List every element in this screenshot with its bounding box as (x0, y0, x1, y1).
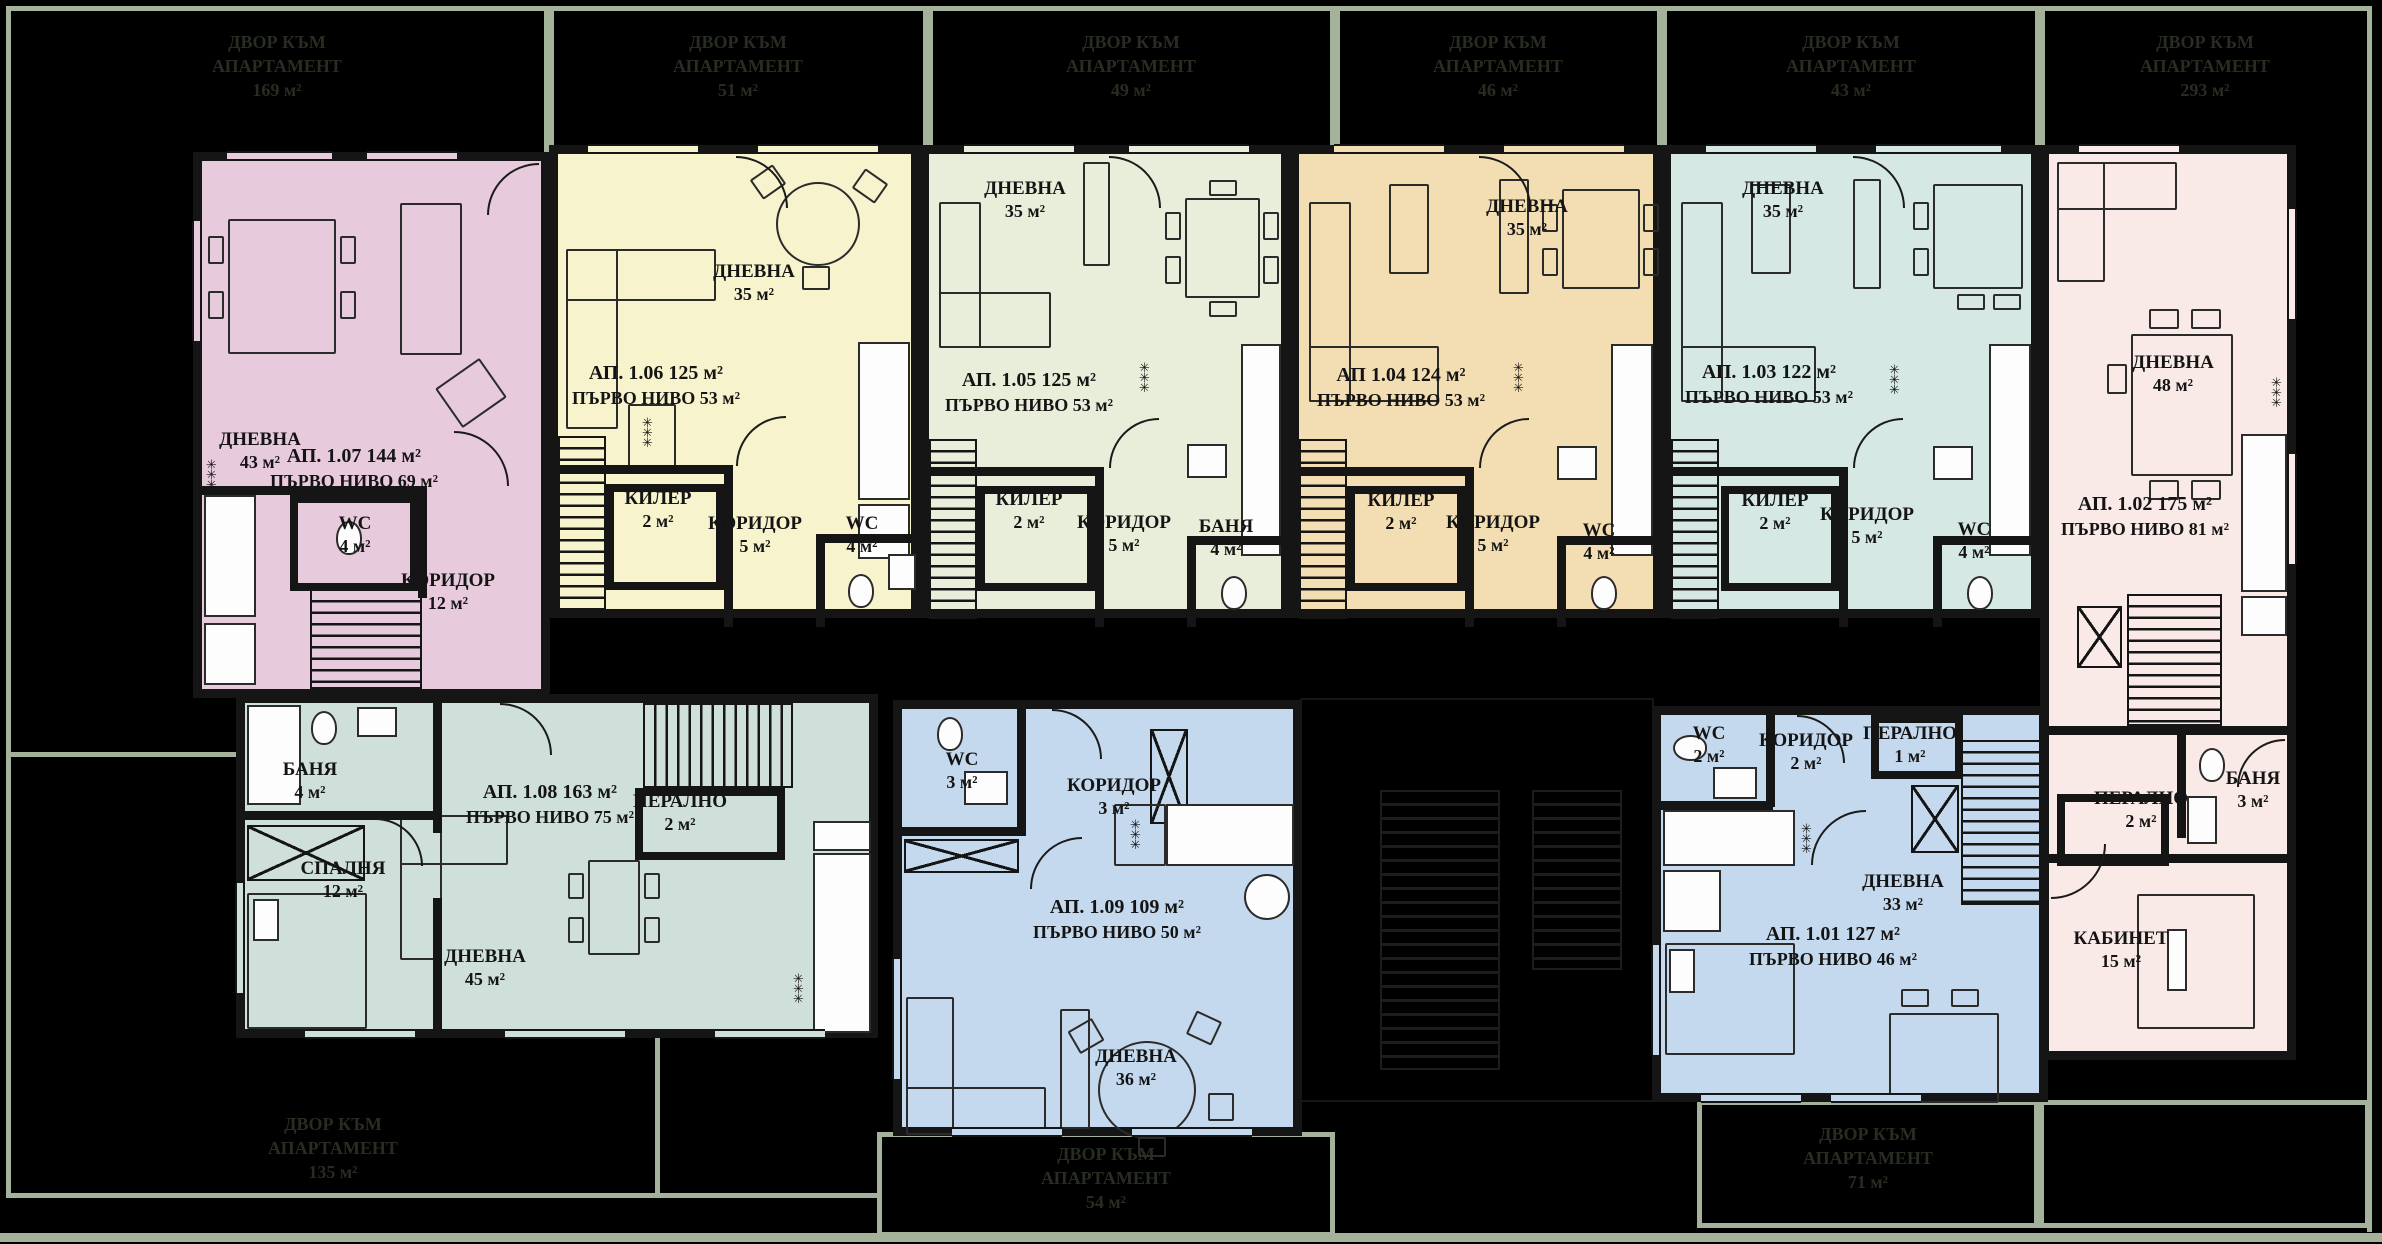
yard-label: ДВОР КЪМ АПАРТАМЕНТ 169 м² (212, 30, 342, 102)
room-name: КОРИДОР (1820, 504, 1914, 525)
chair (1542, 248, 1558, 276)
yard-label-line: ДВОР КЪМ (673, 30, 803, 54)
room-name: КИЛЕР (625, 488, 692, 509)
stairs (1532, 790, 1622, 970)
room-area: 5 м² (1446, 534, 1540, 556)
window (1651, 945, 1661, 1055)
room-label: WC 4 м² (339, 513, 372, 557)
radiator-symbol: ✳✳✳ (1139, 364, 1154, 394)
stairs (1671, 439, 1719, 619)
room-label: КОРИДОР 5 м² (708, 513, 802, 557)
kitchen-counter (1611, 344, 1653, 556)
room-label: ДНЕВНА 33 м² (1862, 871, 1944, 915)
yard-label-line: ДВОР КЪМ (2140, 30, 2270, 54)
window (758, 144, 878, 154)
room-name: ПЕРАЛНО (1863, 723, 1957, 744)
room-area: 4 м² (1958, 541, 1991, 563)
room-area: 4 м² (1199, 538, 1254, 560)
room-area: 2 м² (1693, 745, 1726, 767)
interior-wall (558, 465, 728, 474)
room-area: 5 м² (708, 535, 802, 557)
room-name: ДНЕВНА (984, 178, 1066, 199)
kitchen-counter (813, 853, 871, 1033)
yard-label-area: 71 м² (1803, 1170, 1933, 1194)
kitchen-counter (1166, 804, 1294, 866)
yard-label-line: ДВОР КЪМ (1803, 1122, 1933, 1146)
chair (1138, 1137, 1166, 1157)
sink (1933, 446, 1973, 480)
common-stairwell (1302, 700, 1652, 1100)
room-label: ДНЕВНА 35 м² (984, 178, 1066, 222)
room-label: WC 2 м² (1693, 723, 1726, 767)
chair (1165, 212, 1181, 240)
apartment-title: АП. 1.03 122 м² ПЪРВО НИВО 53 м² (1685, 360, 1853, 410)
window (952, 1127, 1062, 1137)
apartment-level: ПЪРВО НИВО 69 м² (270, 469, 438, 494)
room-label: ДНЕВНА 35 м² (713, 261, 795, 305)
window (1129, 144, 1249, 154)
plot-line (2367, 6, 2372, 1232)
chair (208, 236, 224, 264)
window (715, 1029, 825, 1039)
kitchen-counter (1989, 344, 2031, 556)
sink (204, 623, 256, 685)
closet-x (904, 839, 1019, 873)
apartment-title: АП. 1.01 127 м² ПЪРВО НИВО 46 м² (1749, 922, 1917, 972)
door-arc (1853, 156, 1905, 208)
door-arc (1853, 418, 1903, 468)
room-area: 33 м² (1862, 893, 1944, 915)
yard-label-area: 46 м² (1433, 78, 1563, 102)
room-area: 12 м² (401, 592, 495, 614)
pillow (1669, 949, 1695, 993)
apartment-number: АП. 1.01 127 м² (1766, 923, 1900, 945)
yard-label-line: ДВОР КЪМ (1786, 30, 1916, 54)
chair (1263, 256, 1279, 284)
chair (1186, 1010, 1222, 1045)
yard-label-line: АПАРТАМЕНТ (1786, 54, 1916, 78)
room-name: ДНЕВНА (444, 946, 526, 967)
yard-label-area: 43 м² (1786, 78, 1916, 102)
room-name: КОРИДОР (401, 570, 495, 591)
shelf (1083, 162, 1110, 266)
interior-wall (816, 534, 825, 627)
apartment-108[interactable]: ✳✳✳ БАНЯ 4 м² АП. 1.08 163 м² ПЪРВО НИВО… (236, 694, 878, 1038)
sink (1557, 446, 1597, 480)
apartment-level: ПЪРВО НИВО 53 м² (572, 386, 740, 411)
room-label: WC 4 м² (1583, 520, 1616, 564)
chair (2191, 309, 2221, 329)
room-name: ДНЕВНА (713, 261, 795, 282)
sink (357, 707, 397, 737)
apartment-number: АП. 1.06 125 м² (589, 362, 723, 384)
sink (1187, 444, 1227, 478)
stairs (1961, 740, 2049, 905)
room-area: 4 м² (846, 535, 879, 557)
toilet (311, 711, 337, 745)
yard-label-line: АПАРТАМЕНТ (1803, 1146, 1933, 1170)
room-area: 15 м² (2074, 950, 2169, 972)
sofa (2057, 162, 2105, 282)
plot-line (660, 1193, 877, 1198)
room-area: 5 м² (1077, 534, 1171, 556)
room-label: КОРИДОР 5 м² (1820, 504, 1914, 548)
room-name: СПАЛНЯ (301, 858, 386, 879)
window (192, 221, 202, 341)
room-area: 36 м² (1095, 1068, 1177, 1090)
room-area: 35 м² (1742, 200, 1824, 222)
apartment-109[interactable]: ✳✳✳ WC 3 м² КОРИДОР 3 м² АП. 1.09 109 м²… (893, 700, 1302, 1136)
room-name: WC (1958, 519, 1991, 540)
apartment-103[interactable]: ✳✳✳ ДНЕВНА 35 м² АП. 1.03 122 м² ПЪРВО Н… (1662, 145, 2040, 618)
room-name: ДНЕВНА (2132, 352, 2214, 373)
room-label: ПЕРАЛНО 1 м² (1863, 723, 1957, 767)
toilet (1221, 576, 1247, 610)
room-name: ДНЕВНА (1486, 196, 1568, 217)
interior-wall (1671, 467, 1843, 476)
dining-table (1889, 1013, 1999, 1103)
door-arc (1052, 709, 1102, 759)
room-label: БАНЯ 3 м² (2226, 768, 2281, 812)
room-name: ДНЕВНА (1095, 1046, 1177, 1067)
room-label: БАНЯ 4 м² (1199, 516, 1254, 560)
room-area: 2 м² (1368, 512, 1435, 534)
dining-table (1185, 198, 1260, 298)
yard-label-line: АПАРТАМЕНТ (212, 54, 342, 78)
room-name: БАНЯ (283, 759, 338, 780)
window (227, 151, 332, 161)
door-arc (1109, 156, 1161, 208)
interior-wall (929, 467, 1099, 476)
yard-label-line: АПАРТАМЕНТ (673, 54, 803, 78)
room-name: БАНЯ (2226, 768, 2281, 789)
window (305, 1029, 415, 1039)
room-label: СПАЛНЯ 12 м² (301, 858, 386, 902)
yard-label: ДВОР КЪМ АПАРТАМЕНТ 43 м² (1786, 30, 1916, 102)
window (1706, 144, 1816, 154)
room-label: КОРИДОР 5 м² (1077, 512, 1171, 556)
apartment-106[interactable]: ✳✳✳ ДНЕВНА 35 м² АП. 1.06 125 м² ПЪРВО Н… (549, 145, 920, 618)
kitchen-fixture (1244, 874, 1290, 920)
interior-wall (902, 827, 1026, 836)
shelf (1389, 184, 1429, 274)
closet-x (2077, 606, 2122, 668)
room-area: 2 м² (633, 813, 727, 835)
door-arc (1030, 837, 1082, 889)
stairs (929, 439, 977, 619)
closet-x (1911, 785, 1959, 853)
yard-label: ДВОР КЪМ АПАРТАМЕНТ 135 м² (268, 1112, 398, 1184)
yard-label: ДВОР КЪМ АПАРТАМЕНТ 49 м² (1066, 30, 1196, 102)
yard-label-line: АПАРТАМЕНТ (268, 1136, 398, 1160)
room-name: КОРИДОР (1446, 512, 1540, 533)
room-label: ПЕРАЛНО 2 м² (633, 791, 727, 835)
yard-label-area: 51 м² (673, 78, 803, 102)
window (1876, 144, 2001, 154)
apartment-title: АП 1.04 124 м² ПЪРВО НИВО 53 м² (1317, 363, 1485, 413)
chair (340, 236, 356, 264)
room-area: 12 м² (301, 880, 386, 902)
apartment-title: АП. 1.06 125 м² ПЪРВО НИВО 53 м² (572, 361, 740, 411)
apartment-level: ПЪРВО НИВО 75 м² (466, 805, 634, 830)
room-name: WC (946, 749, 979, 770)
yard-label: ДВОР КЪМ АПАРТАМЕНТ 51 м² (673, 30, 803, 102)
door-arc (736, 156, 788, 208)
room-area: 4 м² (339, 535, 372, 557)
interior-wall (1557, 536, 1566, 627)
room-name: КИЛЕР (996, 489, 1063, 510)
plot-line (0, 1233, 2382, 1242)
kitchen-counter (1663, 810, 1795, 866)
toilet (848, 574, 874, 608)
room-label: КИЛЕР 2 м² (1742, 490, 1809, 534)
chair (1263, 212, 1279, 240)
radiator-symbol: ✳✳✳ (2271, 379, 2286, 409)
chair (2107, 364, 2127, 394)
apartment-number: АП 1.04 124 м² (1336, 364, 1465, 386)
apartment-title: АП. 1.07 144 м² ПЪРВО НИВО 69 м² (270, 444, 438, 494)
window (964, 144, 1074, 154)
room-name: ДНЕВНА (1862, 871, 1944, 892)
yard-label: ДВОР КЪМ АПАРТАМЕНТ 71 м² (1803, 1122, 1933, 1194)
door-arc (1479, 418, 1529, 468)
room-name: WC (846, 513, 879, 534)
yard-label-area: 135 м² (268, 1160, 398, 1184)
yard-label-line: ДВОР КЪМ (1433, 30, 1563, 54)
apartment-number: АП. 1.03 122 м² (1702, 361, 1836, 383)
room-area: 3 м² (2226, 790, 2281, 812)
apartment-level: ПЪРВО НИВО 81 м² (2061, 517, 2229, 542)
apartment-title: АП. 1.02 175 м² ПЪРВО НИВО 81 м² (2061, 492, 2229, 542)
chair (644, 917, 660, 943)
sink (2187, 796, 2217, 844)
room-label: ПЕРАЛНО 2 м² (2094, 788, 2188, 832)
chair (852, 168, 889, 204)
chair (1208, 1093, 1234, 1121)
apartment-number: АП. 1.07 144 м² (287, 445, 421, 467)
chair (1913, 202, 1929, 230)
room-label: КИЛЕР 2 м² (625, 488, 692, 532)
chair (1913, 248, 1929, 276)
door-arc (454, 431, 509, 486)
yard-label: ДВОР КЪМ АПАРТАМЕНТ 46 м² (1433, 30, 1563, 102)
window (588, 144, 698, 154)
window (1831, 1093, 1921, 1103)
room-name: WC (339, 513, 372, 534)
apartment-number: АП. 1.08 163 м² (483, 781, 617, 803)
chair (340, 291, 356, 319)
apartment-level: ПЪРВО НИВО 46 м² (1749, 947, 1917, 972)
apartment-105[interactable]: ✳✳✳ ДНЕВНА 35 м² АП. 1.05 125 м² ПЪРВО Н… (920, 145, 1290, 618)
room-label: КОРИДОР 5 м² (1446, 512, 1540, 556)
sink (2241, 596, 2287, 636)
door-arc (736, 416, 786, 466)
door-arc (1811, 810, 1866, 865)
window (367, 151, 457, 161)
toilet (937, 717, 963, 751)
room-name: КАБИНЕТ (2074, 928, 2169, 949)
kitchen-counter (858, 342, 910, 500)
window (505, 1029, 625, 1039)
radiator-symbol: ✳✳✳ (1513, 364, 1528, 394)
desk-monitor (2167, 929, 2187, 991)
room-label: ДНЕВНА 35 м² (1486, 196, 1568, 240)
room-label: ДНЕВНА 45 м² (444, 946, 526, 990)
room-label: КОРИДОР 12 м² (401, 570, 495, 614)
room-name: КИЛЕР (1368, 490, 1435, 511)
room-name: БАНЯ (1199, 516, 1254, 537)
chair (1901, 989, 1929, 1007)
stairs (643, 703, 793, 788)
chair (1209, 301, 1237, 317)
apartment-title: АП. 1.05 125 м² ПЪРВО НИВО 53 м² (945, 368, 1113, 418)
interior-wall (1933, 536, 2049, 545)
dining-table (776, 182, 860, 266)
stairs (2127, 594, 2222, 726)
room-label: КИЛЕР 2 м² (1368, 490, 1435, 534)
apartment-107[interactable]: ✳✳✳ ДНЕВНА 43 м² АП. 1.07 144 м² ПЪРВО Н… (193, 152, 550, 698)
door-arc (2051, 844, 2106, 899)
room-area: 4 м² (1583, 542, 1616, 564)
yard-label-line: ДВОР КЪМ (212, 30, 342, 54)
room-label: WC 4 м² (846, 513, 879, 557)
plot-line (6, 6, 11, 1198)
chair (1957, 294, 1985, 310)
door-arc (500, 703, 552, 755)
room-area: 2 м² (996, 511, 1063, 533)
chair (1209, 180, 1237, 196)
chair (568, 917, 584, 943)
window (1132, 1127, 1252, 1137)
toilet (1591, 576, 1617, 610)
interior-wall (1933, 536, 1942, 627)
stairs (1299, 439, 1347, 619)
apartment-level: ПЪРВО НИВО 53 м² (1685, 385, 1853, 410)
apartment-101[interactable]: ✳✳✳ WC 2 м² КОРИДОР 2 м² ПЕРАЛНО 1 м² ДН… (1652, 706, 2048, 1102)
room-label: WC 4 м² (1958, 519, 1991, 563)
apartment-102[interactable]: ✳✳✳ ДНЕВНА 48 м² АП. 1.02 175 м² ПЪРВО Н… (2040, 145, 2296, 1060)
floor-plan: ДВОР КЪМ АПАРТАМЕНТ 169 м² ДВОР КЪМ АПАР… (0, 0, 2382, 1244)
window (2287, 454, 2297, 564)
window (892, 959, 902, 1079)
toilet (2199, 748, 2225, 782)
room-area: 2 м² (625, 510, 692, 532)
room-name: КОРИДОР (1759, 730, 1853, 751)
sofa (400, 203, 462, 355)
radiator-symbol: ✳✳✳ (1889, 366, 1904, 396)
window (1504, 144, 1624, 154)
interior-wall (1017, 709, 1026, 834)
yard-label-line: АПАРТАМЕНТ (1433, 54, 1563, 78)
apartment-104[interactable]: ✳✳✳ ДНЕВНА 35 м² АП 1.04 124 м² ПЪРВО НИ… (1290, 145, 1662, 618)
yard-label: ДВОР КЪМ АПАРТАМЕНТ 293 м² (2140, 30, 2270, 102)
yard-label-line: АПАРТАМЕНТ (2140, 54, 2270, 78)
apartment-number: АП. 1.02 175 м² (2078, 493, 2212, 515)
apartment-level: ПЪРВО НИВО 53 м² (945, 393, 1113, 418)
chair (568, 873, 584, 899)
room-name: ПЕРАЛНО (2094, 788, 2188, 809)
room-label: КИЛЕР 2 м² (996, 489, 1063, 533)
door-arc (487, 163, 539, 215)
room-area: 3 м² (946, 771, 979, 793)
room-area: 2 м² (1742, 512, 1809, 534)
sink (888, 554, 916, 590)
room-area: 1 м² (1863, 745, 1957, 767)
room-area: 45 м² (444, 968, 526, 990)
room-label: ДНЕВНА 35 м² (1742, 178, 1824, 222)
chair (1951, 989, 1979, 1007)
yard-label-line: АПАРТАМЕНТ (1066, 54, 1196, 78)
chair (2149, 309, 2179, 329)
room-name: WC (1693, 723, 1726, 744)
room-name: КОРИДОР (1077, 512, 1171, 533)
apartment-number: АП. 1.09 109 м² (1050, 896, 1184, 918)
radiator-symbol: ✳✳✳ (793, 975, 808, 1005)
yard-label-area: 293 м² (2140, 78, 2270, 102)
radiator-symbol: ✳✳✳ (642, 419, 657, 449)
room-name: КОРИДОР (708, 513, 802, 534)
interior-wall (1299, 467, 1469, 476)
chair (644, 873, 660, 899)
radiator-symbol: ✳✳✳ (1130, 821, 1145, 851)
toilet (1967, 576, 1993, 610)
pillow (253, 899, 279, 941)
chair (1643, 204, 1659, 232)
interior-wall (1187, 536, 1196, 627)
chair (1993, 294, 2021, 310)
room-area: 5 м² (1820, 526, 1914, 548)
room-label: ДНЕВНА 48 м² (2132, 352, 2214, 396)
dining-table (588, 860, 640, 955)
sofa (939, 292, 1051, 348)
dining-table (1933, 184, 2023, 289)
room-area: 35 м² (713, 283, 795, 305)
interior-wall (433, 898, 442, 1029)
kitchen-counter (1663, 870, 1721, 932)
room-name: КОРИДОР (1067, 775, 1161, 796)
stairs (1380, 790, 1500, 1070)
room-label: КОРИДОР 3 м² (1067, 775, 1161, 819)
room-label: WC 3 м² (946, 749, 979, 793)
yard-plot (2039, 1100, 2370, 1228)
interior-wall (1661, 801, 1773, 810)
room-area: 2 м² (1759, 752, 1853, 774)
yard-label-area: 54 м² (1041, 1190, 1171, 1214)
chair (208, 291, 224, 319)
yard-label-line: АПАРТАМЕНТ (1041, 1166, 1171, 1190)
window (235, 883, 245, 993)
dining-table (228, 219, 336, 354)
radiator-symbol: ✳✳✳ (1801, 825, 1816, 855)
chair (1165, 256, 1181, 284)
room-area: 4 м² (283, 781, 338, 803)
yard-label-area: 169 м² (212, 78, 342, 102)
chair (802, 266, 830, 290)
armchair (435, 358, 507, 428)
apartment-level: ПЪРВО НИВО 50 м² (1033, 920, 1201, 945)
room-name: ПЕРАЛНО (633, 791, 727, 812)
sink (1713, 767, 1757, 799)
chair (1643, 248, 1659, 276)
window (1701, 1093, 1801, 1103)
kitchen-counter (2241, 434, 2287, 592)
apartment-level: ПЪРВО НИВО 53 м² (1317, 388, 1485, 413)
room-label: БАНЯ 4 м² (283, 759, 338, 803)
room-area: 35 м² (1486, 218, 1568, 240)
window (2287, 209, 2297, 319)
stairs (558, 436, 606, 618)
window (2079, 144, 2179, 154)
